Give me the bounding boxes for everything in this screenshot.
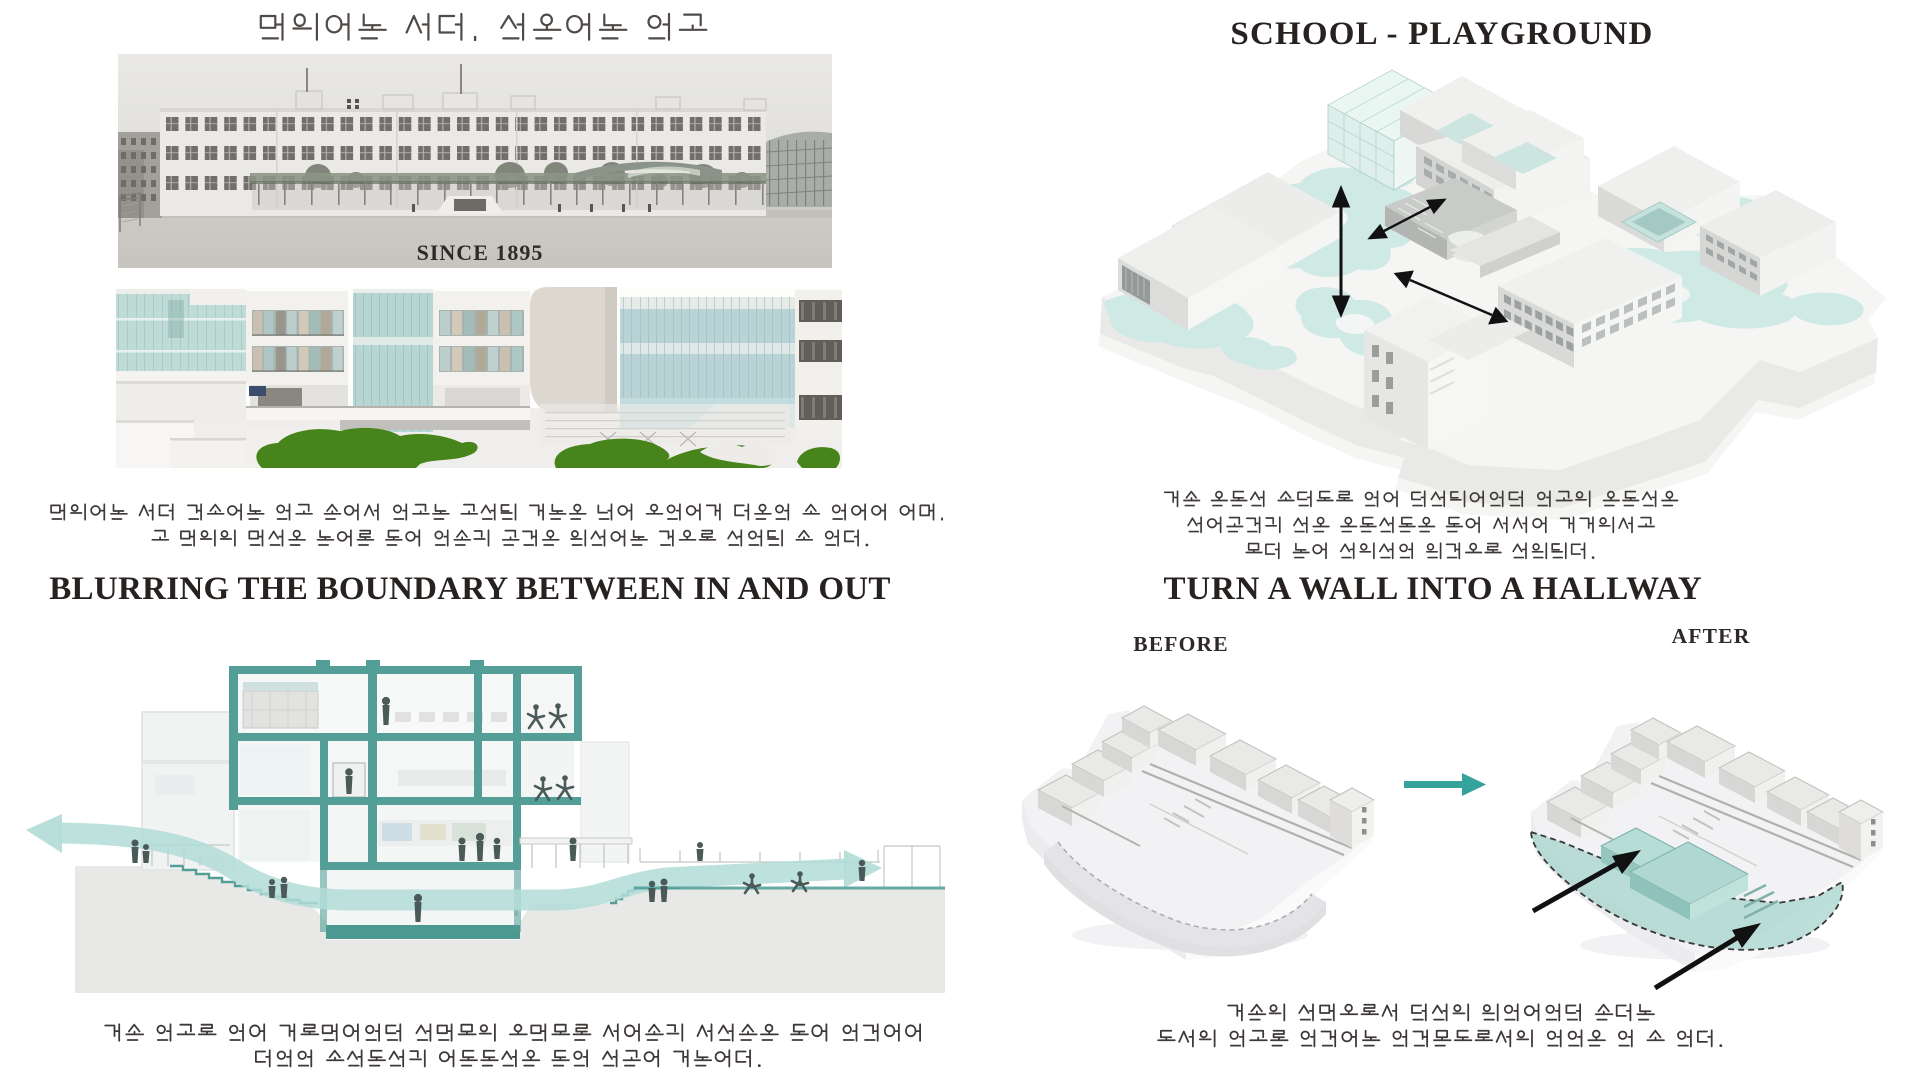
- svg-text:BLURRING THE BOUNDARY BETWEEN: BLURRING THE BOUNDARY BETWEEN IN AND OUT: [49, 571, 890, 607]
- svg-text:BEFORE: BEFORE: [1133, 632, 1229, 656]
- svg-text:SCHOOL - PLAYGROUND: SCHOOL - PLAYGROUND: [1230, 16, 1653, 52]
- svg-text:SINCE 1895: SINCE 1895: [417, 240, 544, 265]
- svg-text:TURN A WALL INTO A HALLWAY: TURN A WALL INTO A HALLWAY: [1164, 571, 1703, 607]
- svg-text:AFTER: AFTER: [1672, 624, 1751, 648]
